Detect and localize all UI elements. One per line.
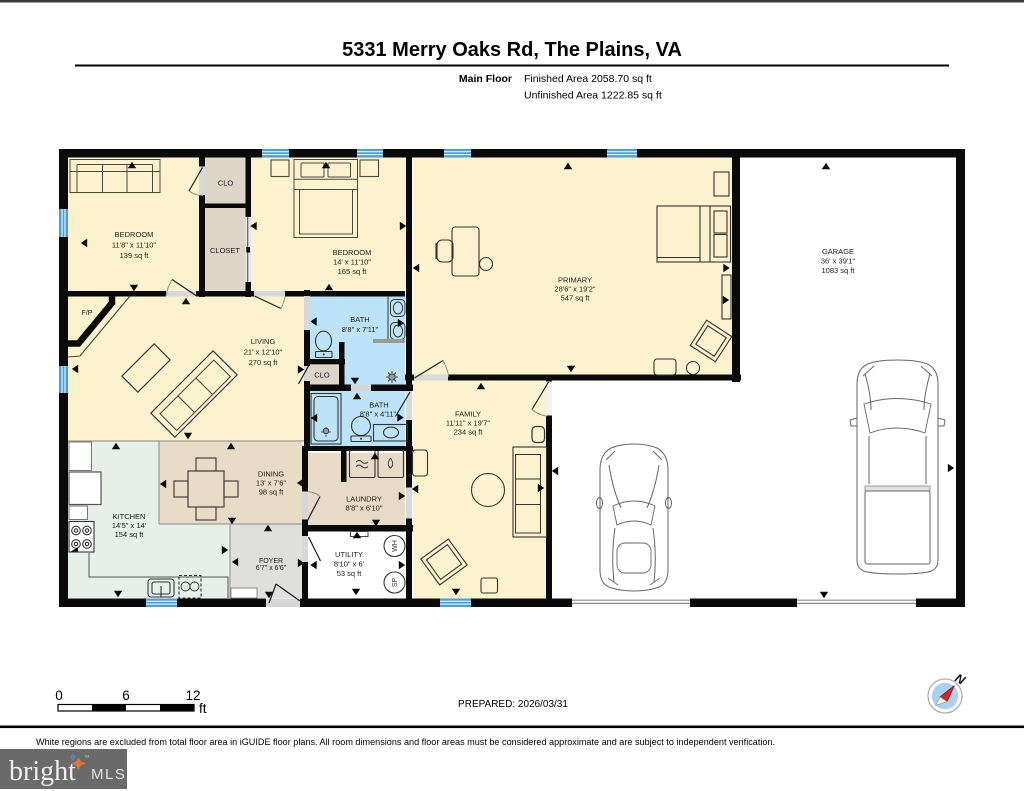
svg-text:ft: ft [199,701,207,716]
svg-text:6: 6 [122,688,130,703]
svg-text:154 sq ft: 154 sq ft [115,530,145,539]
svg-text:LAUNDRY: LAUNDRY [346,495,382,504]
svg-text:8'10" x 6': 8'10" x 6' [334,560,365,569]
svg-text:F/P: F/P [82,310,93,317]
svg-text:CLO: CLO [218,179,234,188]
svg-text:5331 Merry Oaks Rd, The Plains: 5331 Merry Oaks Rd, The Plains, VA [342,39,682,61]
svg-text:PREPARED: 2026/03/31: PREPARED: 2026/03/31 [458,699,568,710]
svg-text:GARAGE: GARAGE [822,247,854,256]
svg-text:36' x 39'1": 36' x 39'1" [821,257,856,266]
svg-text:CLOSET: CLOSET [210,246,240,255]
svg-text:234 sq ft: 234 sq ft [454,428,484,437]
svg-text:FOYER: FOYER [259,558,283,565]
svg-text:8'8" x 6'10": 8'8" x 6'10" [346,504,383,513]
svg-text:KITCHEN: KITCHEN [113,512,146,521]
svg-text:FAMILY: FAMILY [455,410,481,419]
svg-text:White regions are excluded fro: White regions are excluded from total fl… [36,737,775,747]
svg-text:139 sq ft: 139 sq ft [120,251,150,260]
svg-text:BATH: BATH [369,401,388,410]
svg-text:8'8" x 4'11": 8'8" x 4'11" [360,410,397,419]
svg-text:Main Floor: Main Floor [459,73,512,85]
svg-text:BEDROOM: BEDROOM [115,230,154,239]
svg-text:28'6" x 19'2": 28'6" x 19'2" [554,285,595,294]
svg-text:Unfinished Area 1222.85 sq ft: Unfinished Area 1222.85 sq ft [524,90,662,102]
svg-text:0: 0 [55,688,63,703]
svg-text:WH: WH [392,540,399,552]
svg-text:21' x 12'10": 21' x 12'10" [244,348,283,357]
svg-text:165 sq ft: 165 sq ft [338,267,368,276]
svg-text:SP: SP [392,578,399,588]
svg-text:MLS: MLS [91,766,126,783]
svg-text:CLO: CLO [314,371,330,380]
svg-text:11'11" x 19'7": 11'11" x 19'7" [446,419,491,428]
svg-text:14'5" x 14': 14'5" x 14' [112,521,147,530]
svg-text:bright: bright [9,756,76,787]
svg-text:UTILITY: UTILITY [335,550,363,559]
svg-text:53 sq ft: 53 sq ft [337,569,363,578]
svg-text:™: ™ [84,755,90,761]
svg-text:BEDROOM: BEDROOM [333,248,372,257]
svg-text:Finished Area 2058.70 sq ft: Finished Area 2058.70 sq ft [524,73,652,85]
svg-text:98 sq ft: 98 sq ft [259,488,285,497]
svg-text:1083 sq ft: 1083 sq ft [822,266,856,275]
svg-text:270 sq ft: 270 sq ft [249,358,279,367]
svg-text:PRIMARY: PRIMARY [558,276,592,285]
svg-text:13' x 7'6": 13' x 7'6" [256,479,286,488]
svg-text:8'8" x 7'11": 8'8" x 7'11" [342,325,379,334]
svg-text:LIVING: LIVING [251,337,276,346]
svg-text:BATH: BATH [350,315,369,324]
svg-text:DINING: DINING [258,470,284,479]
svg-text:14' x 11'10": 14' x 11'10" [333,258,371,267]
svg-text:547 sq ft: 547 sq ft [561,294,591,303]
svg-text:6'7" x 6'6": 6'7" x 6'6" [256,565,287,572]
svg-text:11'8" x 11'10": 11'8" x 11'10" [112,241,157,250]
